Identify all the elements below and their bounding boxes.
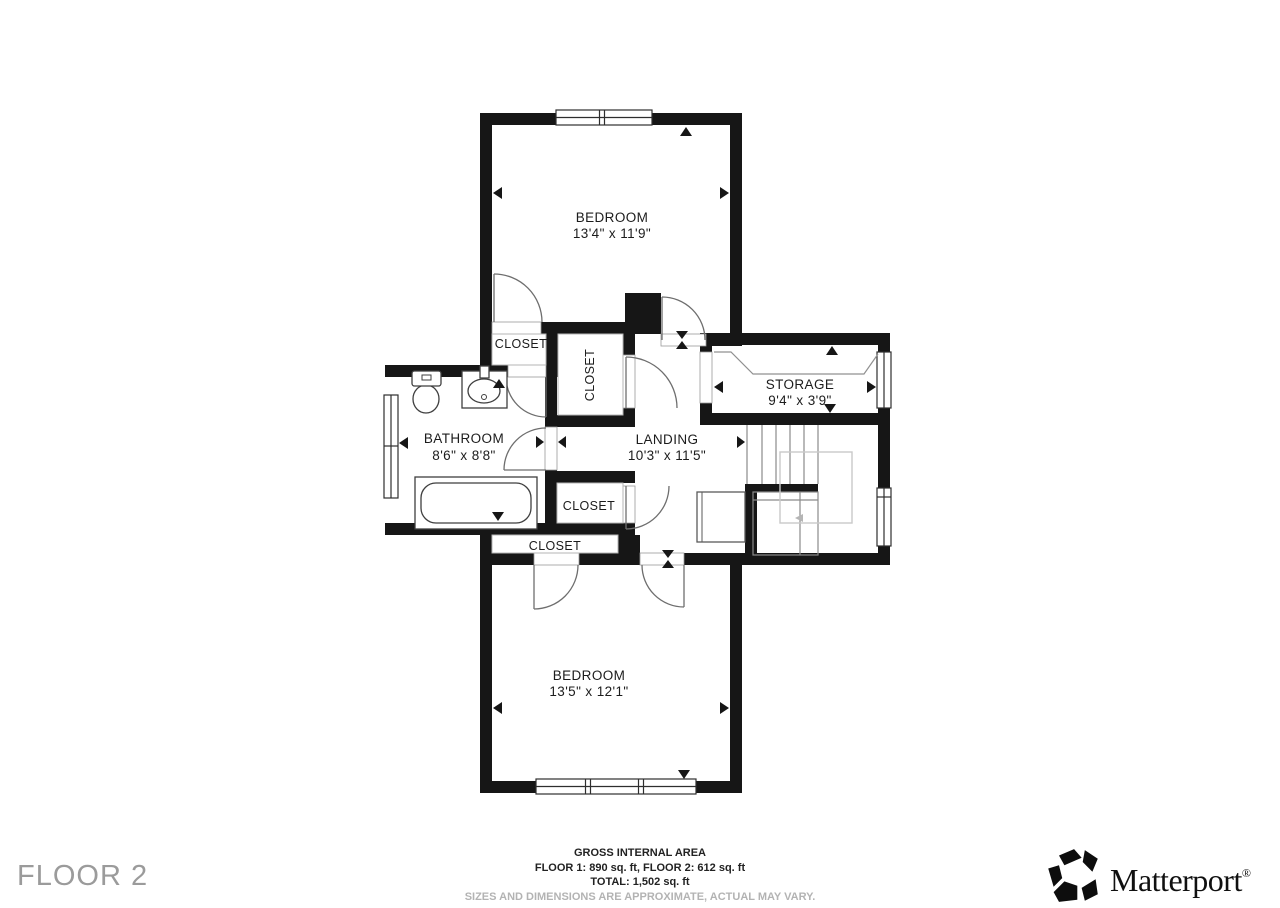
stair-direction-arrow [795, 514, 803, 522]
room-dims: 8'6" x 8'8" [432, 448, 495, 463]
room-dims: 13'4" x 11'9" [573, 226, 651, 241]
room-storage: STORAGE 9'4" x 3'9" [766, 377, 835, 408]
room-closet-upper: CLOSET [583, 349, 597, 401]
matterport-icon [1046, 848, 1100, 904]
landing-cabinet [697, 492, 745, 542]
room-name: STORAGE [766, 377, 835, 392]
window-stairs [877, 488, 891, 546]
matterport-wordmark: Matterport® [1110, 845, 1251, 908]
matterport-logo: Matterport® [1046, 848, 1251, 904]
window-bedroom-top [556, 110, 652, 125]
room-dims: 13'5" x 12'1" [549, 684, 628, 699]
window-bedroom-bottom [536, 779, 696, 794]
door-closet-bathroom [506, 377, 546, 417]
room-landing: LANDING 10'3" x 11'5" [628, 432, 706, 463]
brand-name: Matterport [1110, 862, 1242, 898]
room-bathroom: BATHROOM 8'6" x 8'8" [424, 431, 504, 463]
room-dims: 10'3" x 11'5" [628, 448, 706, 463]
room-name: LANDING [636, 432, 699, 447]
room-closet-lower: CLOSET [529, 539, 581, 553]
storage-slope-line [714, 352, 878, 374]
room-name: BATHROOM [424, 431, 504, 446]
registered-mark: ® [1242, 866, 1251, 880]
room-name: BEDROOM [576, 210, 649, 225]
room-closet-middle: CLOSET [563, 499, 615, 513]
floor-label: FLOOR 2 [17, 860, 148, 893]
bathtub [415, 477, 537, 529]
door-bedroombottom-closet [534, 565, 578, 609]
door-bedroomtop-closet [494, 274, 542, 322]
toilet [412, 371, 441, 413]
room-name: BEDROOM [553, 668, 626, 683]
door-bathroom [504, 428, 546, 470]
room-bedroom-top: BEDROOM 13'4" x 11'9" [573, 210, 651, 241]
room-closet-top: CLOSET [495, 337, 547, 351]
window-storage [877, 352, 891, 408]
room-dims: 9'4" x 3'9" [768, 393, 831, 408]
door-bedroombottom-landing [642, 565, 684, 607]
floorplan: BEDROOM 13'4" x 11'9" CLOSET CLOSET STOR… [0, 0, 1280, 905]
room-bedroom-bottom: BEDROOM 13'5" x 12'1" [549, 668, 628, 699]
window-bathroom [384, 395, 398, 498]
